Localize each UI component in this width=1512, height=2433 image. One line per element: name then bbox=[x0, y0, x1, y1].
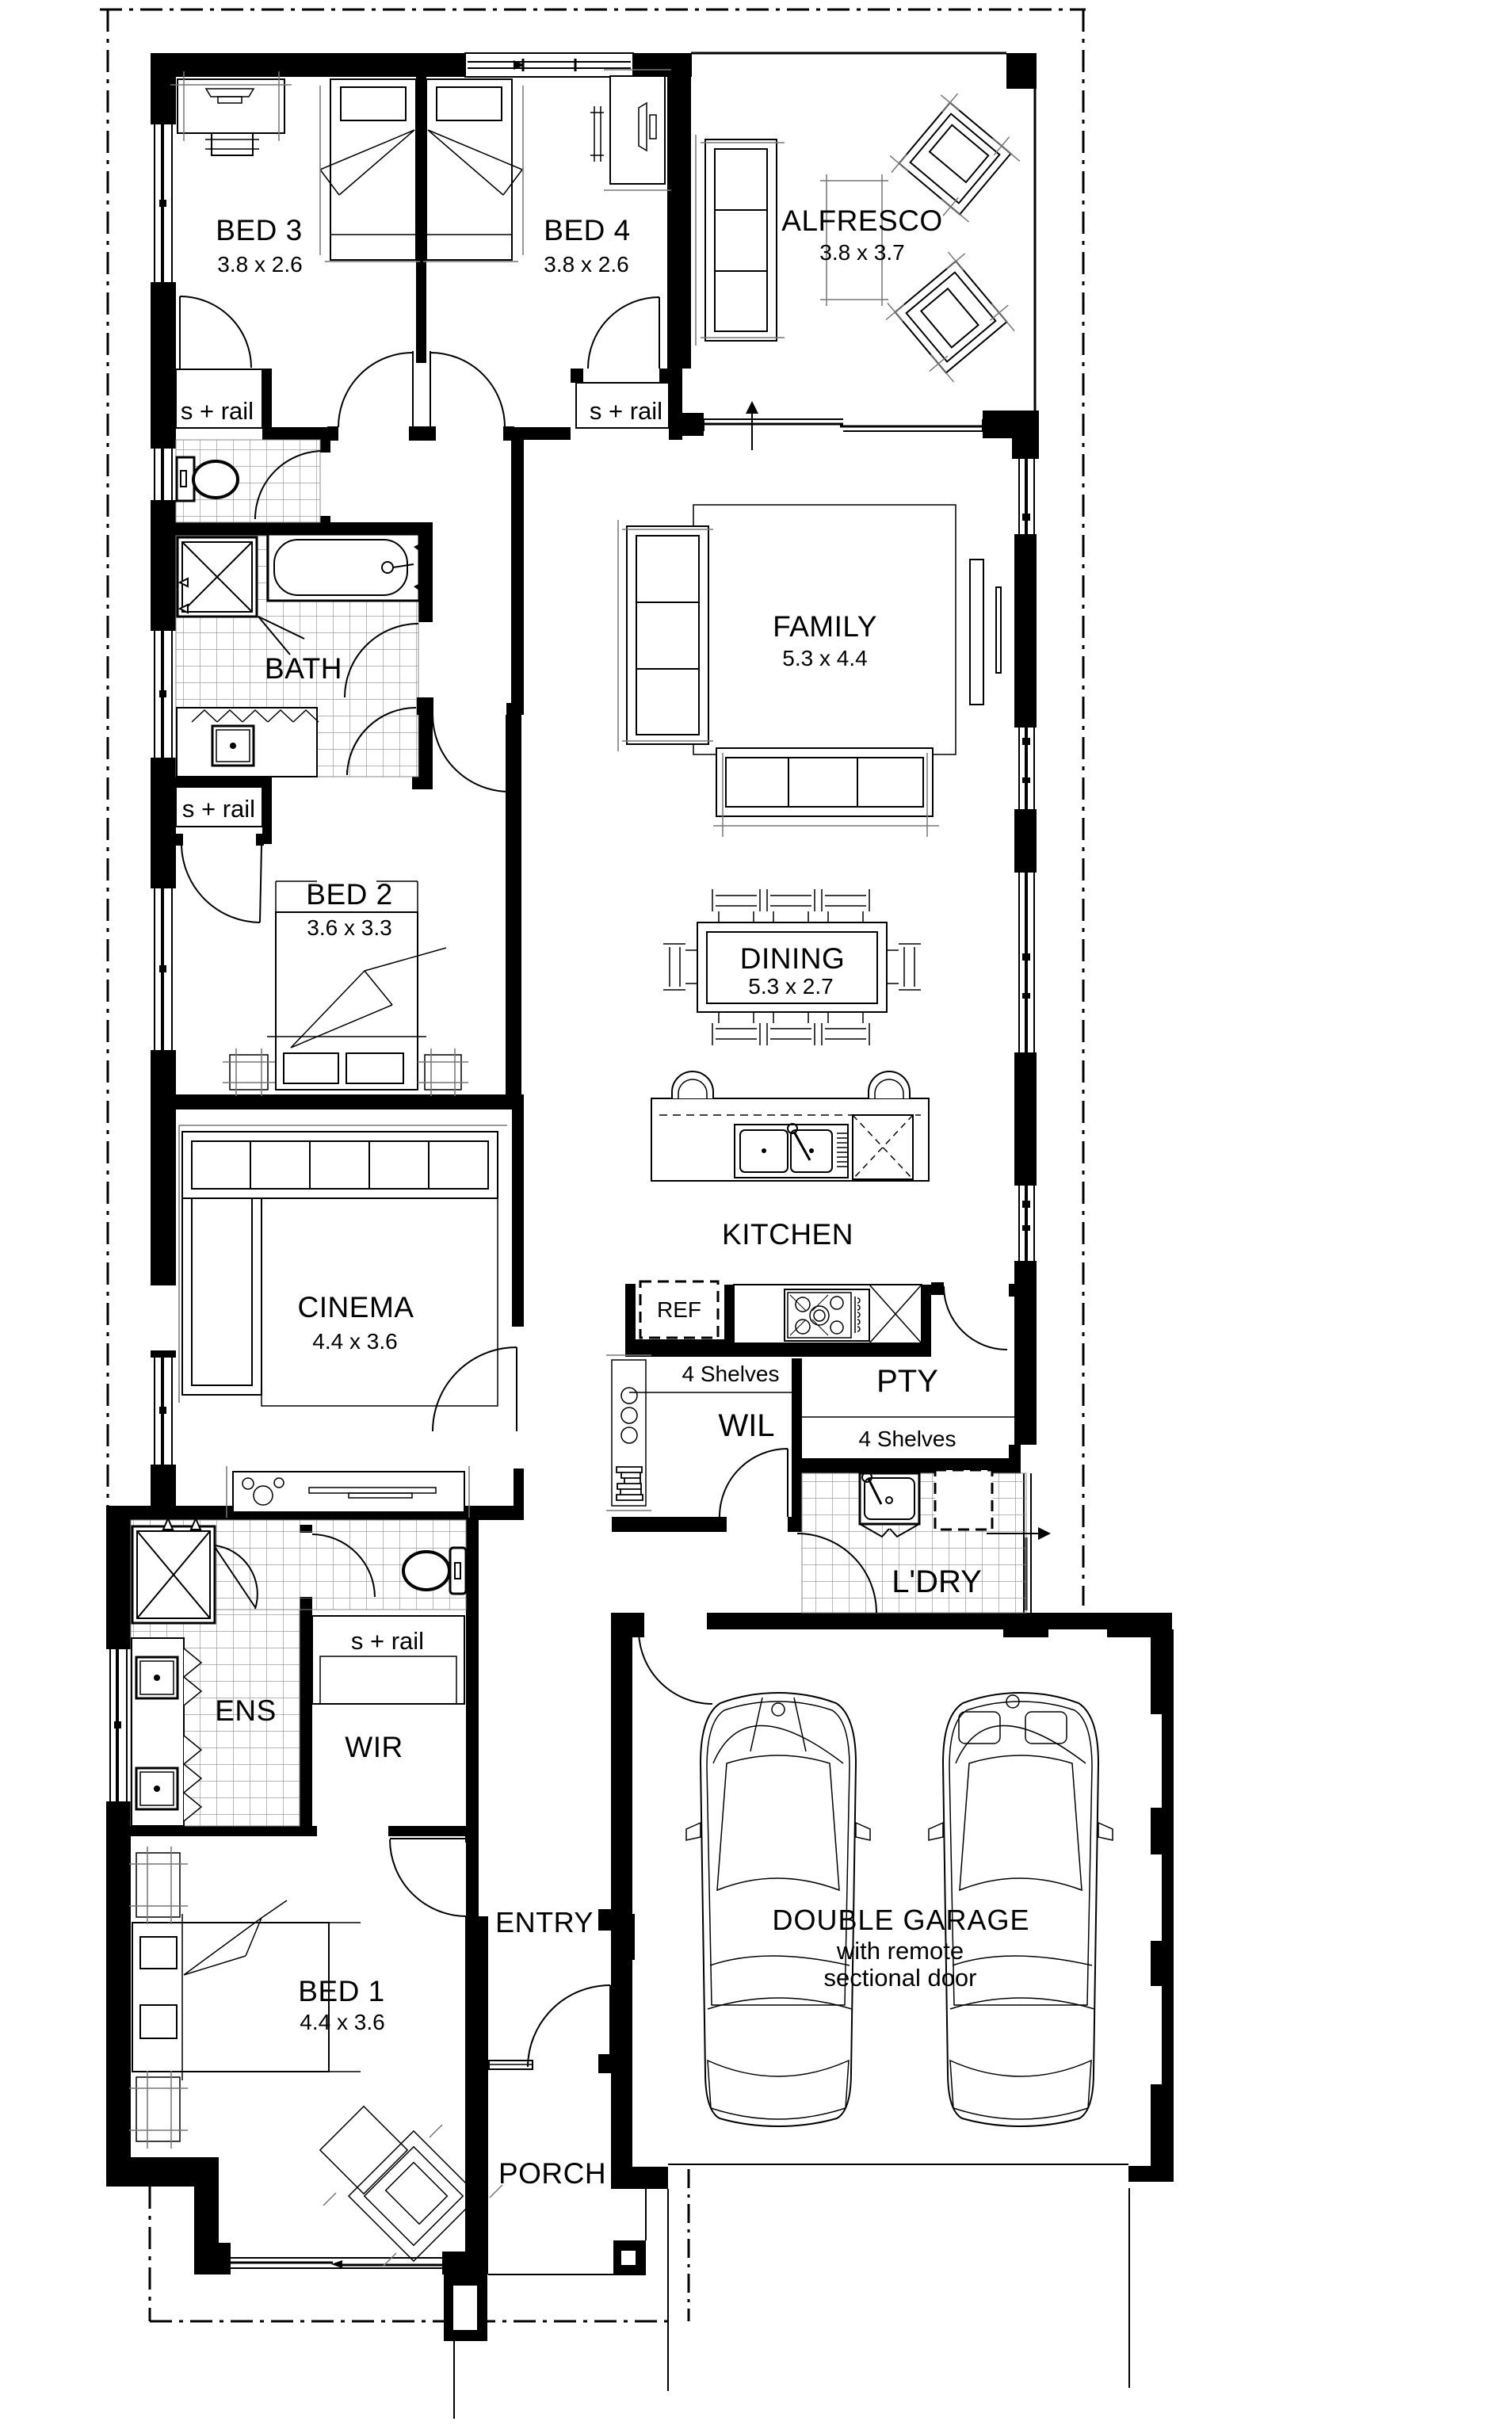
svg-text:REF: REF bbox=[657, 1297, 701, 1322]
svg-text:5.3 x 4.4: 5.3 x 4.4 bbox=[782, 646, 867, 670]
svg-text:3.8 x 3.7: 3.8 x 3.7 bbox=[819, 240, 904, 265]
svg-text:DOUBLE GARAGE: DOUBLE GARAGE bbox=[772, 1904, 1029, 1936]
svg-text:4.4 x 3.6: 4.4 x 3.6 bbox=[312, 1329, 397, 1354]
svg-text:BED 1: BED 1 bbox=[298, 1975, 384, 2007]
svg-text:FAMILY: FAMILY bbox=[773, 610, 877, 643]
svg-text:WIR: WIR bbox=[345, 1731, 403, 1763]
svg-text:L'DRY: L'DRY bbox=[892, 1564, 982, 1599]
svg-text:ENS: ENS bbox=[215, 1694, 277, 1727]
svg-text:s + rail: s + rail bbox=[351, 1627, 424, 1655]
svg-text:3.6 x 3.3: 3.6 x 3.3 bbox=[307, 915, 391, 940]
svg-text:BATH: BATH bbox=[265, 652, 342, 685]
svg-text:s + rail: s + rail bbox=[590, 397, 662, 425]
svg-text:s + rail: s + rail bbox=[181, 397, 254, 425]
svg-text:3.8 x 2.6: 3.8 x 2.6 bbox=[217, 252, 302, 277]
svg-text:4 Shelves: 4 Shelves bbox=[682, 1362, 780, 1386]
svg-text:sectional door: sectional door bbox=[823, 1964, 976, 1992]
svg-text:ENTRY: ENTRY bbox=[495, 1906, 594, 1938]
svg-text:4.4 x 3.6: 4.4 x 3.6 bbox=[300, 2010, 384, 2034]
svg-text:BED 4: BED 4 bbox=[544, 214, 630, 246]
svg-text:DINING: DINING bbox=[740, 942, 846, 975]
svg-text:WIL: WIL bbox=[718, 1408, 774, 1443]
svg-text:with remote: with remote bbox=[836, 1937, 964, 1965]
svg-text:PORCH: PORCH bbox=[498, 2157, 606, 2190]
svg-text:CINEMA: CINEMA bbox=[298, 1291, 414, 1323]
svg-text:s + rail: s + rail bbox=[182, 795, 255, 823]
svg-text:5.3 x 2.7: 5.3 x 2.7 bbox=[748, 974, 833, 999]
svg-text:BED 2: BED 2 bbox=[306, 878, 392, 911]
svg-text:3.8 x 2.6: 3.8 x 2.6 bbox=[544, 252, 628, 277]
svg-text:BED 3: BED 3 bbox=[216, 214, 302, 246]
svg-text:4 Shelves: 4 Shelves bbox=[859, 1427, 956, 1451]
svg-text:ALFRESCO: ALFRESCO bbox=[781, 204, 942, 237]
svg-text:KITCHEN: KITCHEN bbox=[722, 1218, 853, 1251]
svg-text:PTY: PTY bbox=[876, 1364, 938, 1399]
